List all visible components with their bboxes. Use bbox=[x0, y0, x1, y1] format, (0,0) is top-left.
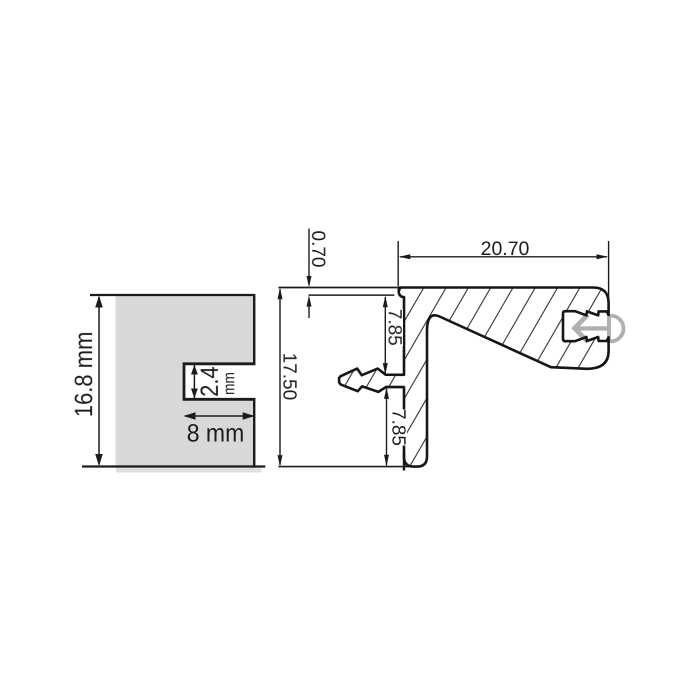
svg-text:7.85: 7.85 bbox=[388, 409, 409, 446]
svg-text:8 mm: 8 mm bbox=[187, 420, 245, 448]
svg-text:0.70: 0.70 bbox=[307, 231, 328, 268]
svg-text:2.4: 2.4 bbox=[196, 366, 224, 397]
svg-text:mm: mm bbox=[221, 372, 238, 395]
svg-text:16.8 mm: 16.8 mm bbox=[70, 332, 98, 418]
svg-text:7.85: 7.85 bbox=[384, 309, 405, 346]
svg-text:17.50: 17.50 bbox=[279, 353, 300, 401]
svg-text:20.70: 20.70 bbox=[481, 238, 530, 260]
